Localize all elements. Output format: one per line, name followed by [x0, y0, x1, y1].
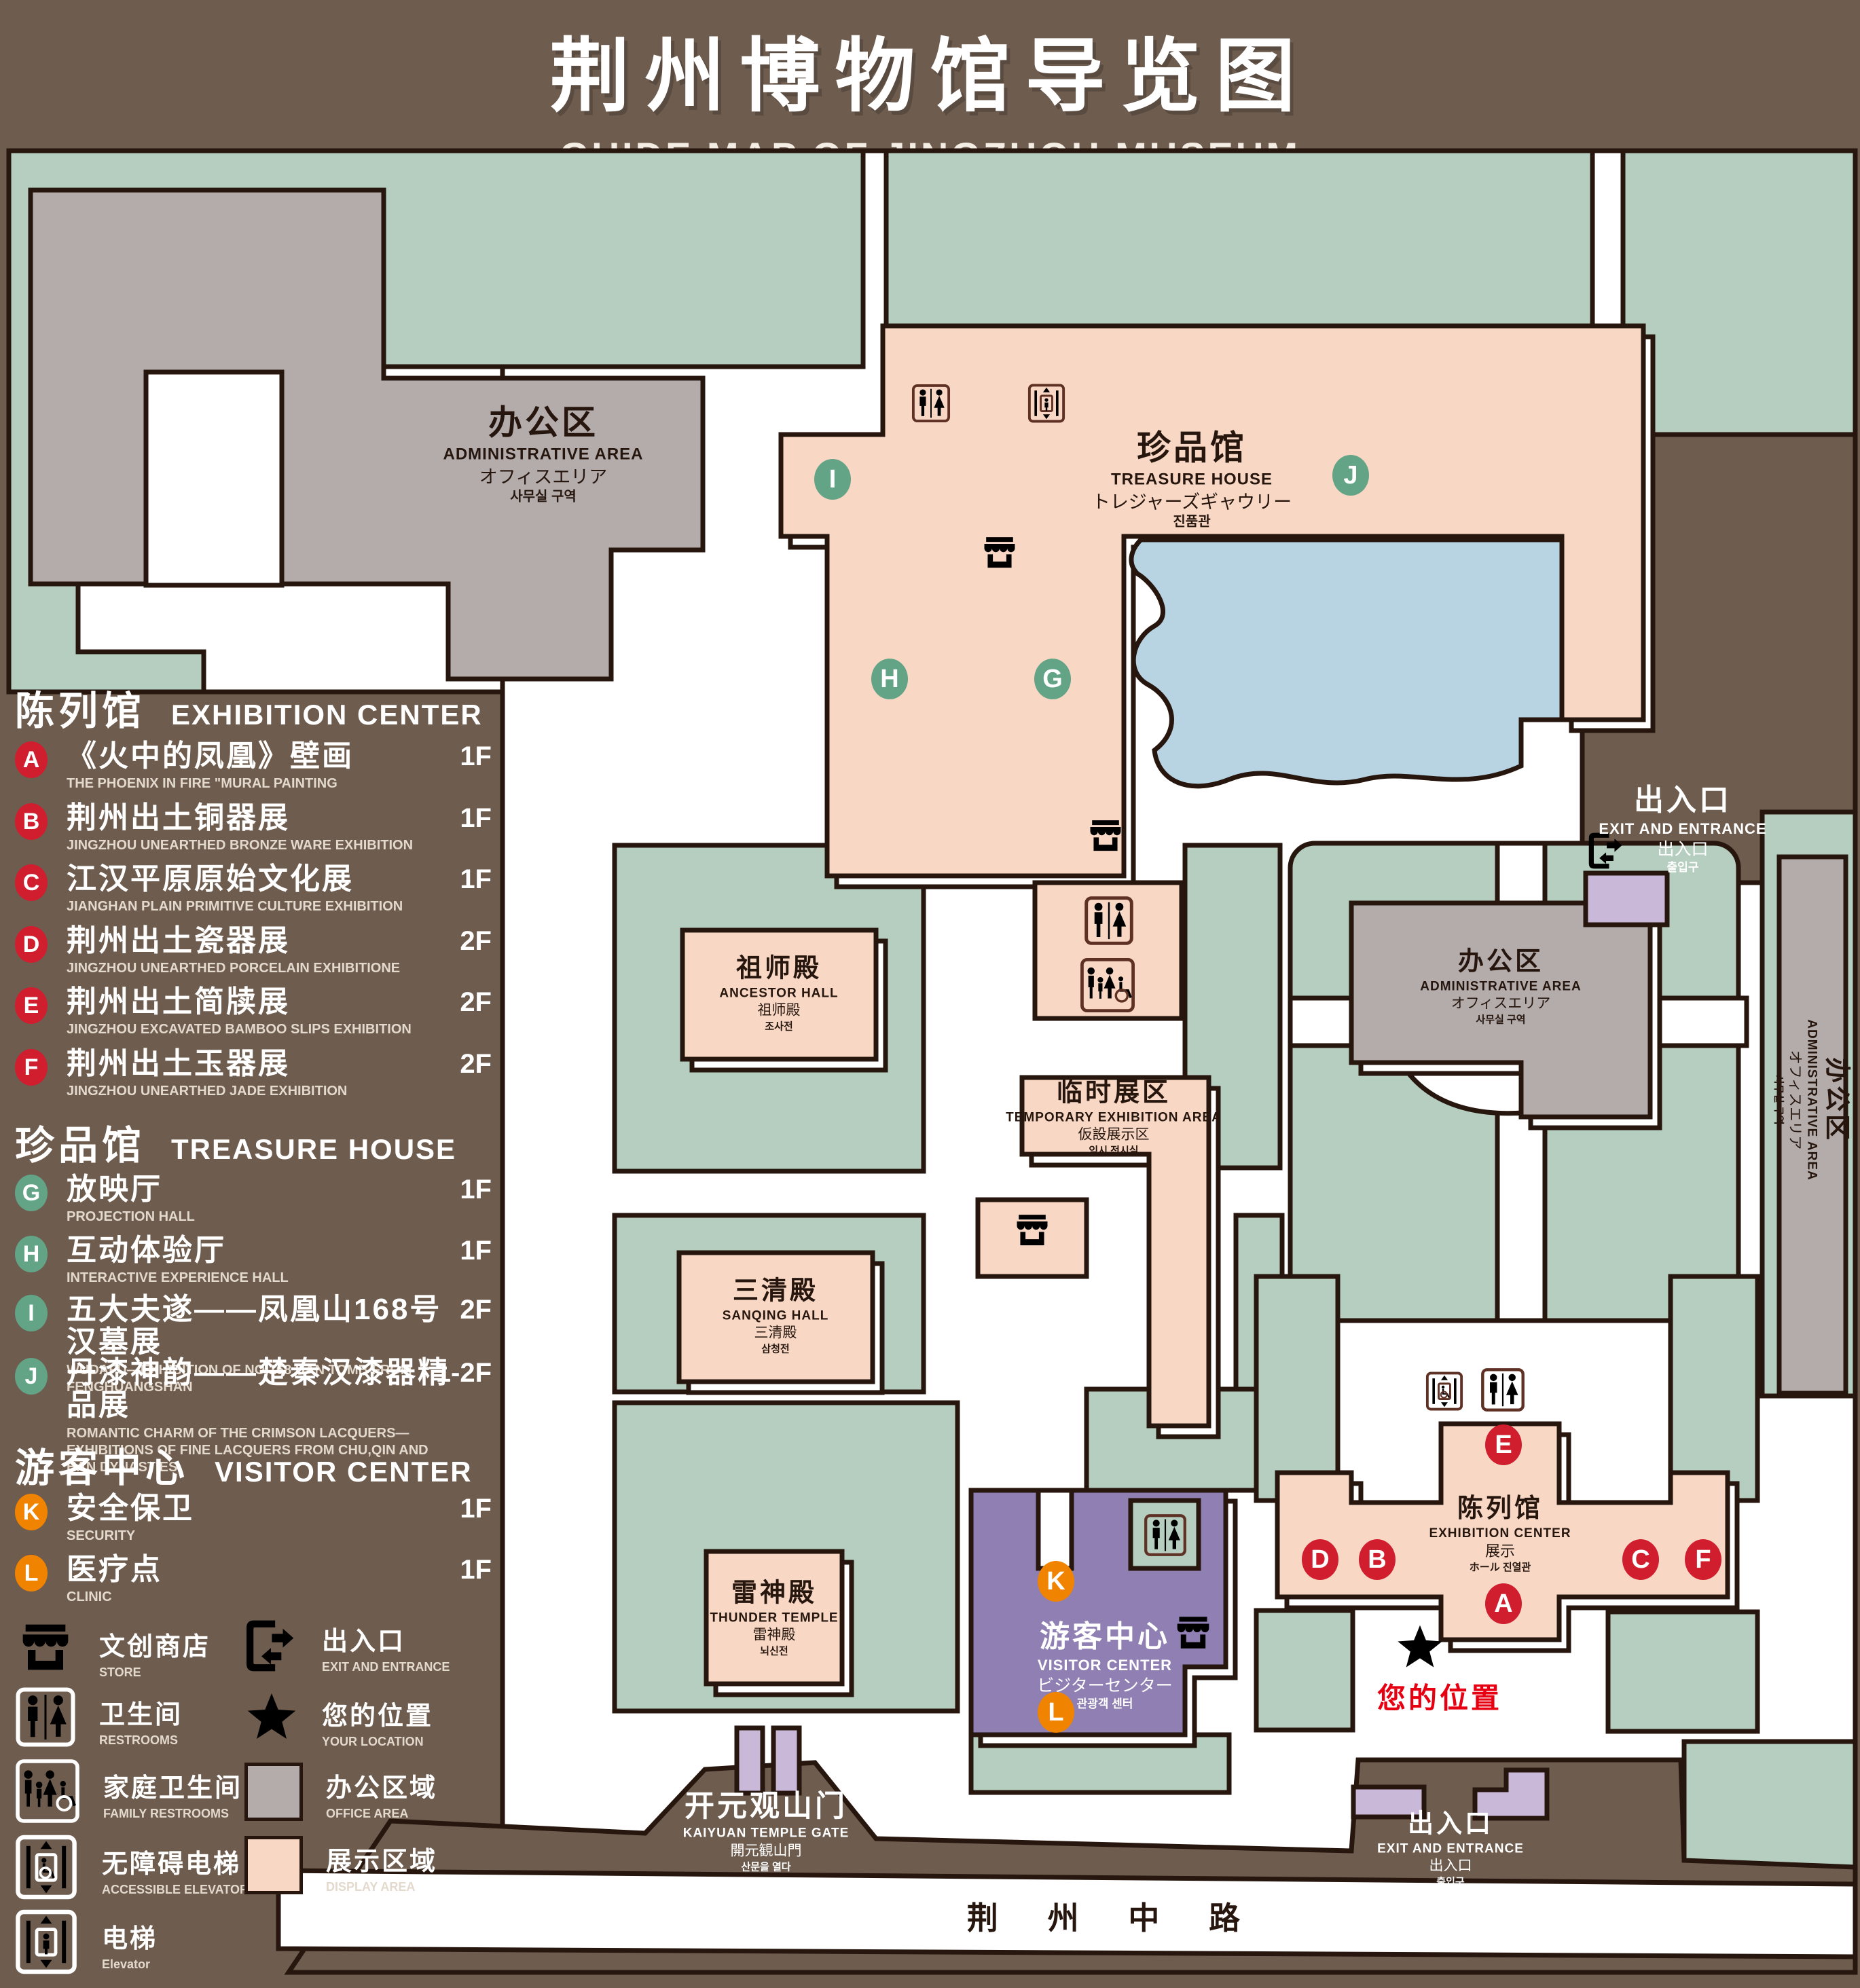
gate-pillar-west [737, 1728, 763, 1793]
legend-item-f: F 荆州出土玉器展 JINGZHOU UNEARTHED JADE EXHIBI… [15, 1048, 492, 1100]
map-badge-g: G [1034, 659, 1071, 699]
symbol-en: YOUR LOCATION [322, 1735, 433, 1749]
item-badge: F [15, 1049, 48, 1086]
map-badge-l: L [1038, 1692, 1074, 1733]
item-badge: I [15, 1295, 48, 1331]
section-title-zh: 陈列馆 [15, 679, 145, 736]
label-kaiyuan-gate: 开元观山门KAIYUAN TEMPLE GATE 開元観山門산문을 열다 [683, 1788, 850, 1874]
legend-symbol-display-area: 展示区域 DISPLAY AREA [244, 1836, 437, 1894]
symbol-zh: 无障碍电梯 [102, 1843, 249, 1880]
item-title-zh: 荆州出土简牍展 [67, 986, 458, 1018]
map-badge-k: K [1038, 1561, 1074, 1602]
item-floor: 1F [460, 1175, 492, 1205]
symbol-en: DISPLAY AREA [326, 1880, 437, 1894]
section-title-en: TREASURE HOUSE [171, 1133, 456, 1166]
item-title-en: JINGZHOU EXCAVATED BAMBOO SLIPS EXHIBITI… [67, 1021, 458, 1038]
item-title-zh: 荆州出土瓷器展 [67, 925, 458, 957]
pond [1131, 540, 1562, 786]
legend-item-a: A 《火中的凤凰》壁画 THE PHOENIX IN FIRE "MURAL P… [15, 740, 492, 792]
green-northeast-corner [1623, 151, 1855, 435]
label-exit-northeast: 出入口EXIT AND ENTRANCE 出入口출입구 [1599, 781, 1766, 875]
guide-map-poster: 荆州博物馆导览图 GUIDE MAP OF JINGZHOU MUSEUM [0, 0, 1860, 1988]
legend-symbol-store: 文创商店 STORE [15, 1621, 211, 1680]
section-title-zh: 珍品馆 [15, 1113, 145, 1171]
item-badge: B [15, 803, 48, 840]
item-badge: L [15, 1555, 48, 1591]
label-exit-south: 出入口EXIT AND ENTRANCE 出入口출입구 [1377, 1808, 1524, 1889]
map-badge-i: I [814, 459, 851, 500]
green-exhibition-ne [1671, 1276, 1757, 1501]
restrooms-icon [1480, 1359, 1525, 1420]
section-title-zh: 游客中心 [15, 1436, 189, 1493]
legend-symbol-accessible-elevator: 无障碍电梯 ACCESSIBLE ELEVATOR [14, 1832, 249, 1902]
item-title-zh: 互动体验厅 [67, 1234, 458, 1267]
green-north-band [886, 151, 1592, 326]
item-floor: 1F [460, 741, 492, 772]
item-badge: D [15, 926, 48, 963]
label-admin-side: 办公区ADMINISTRATIVE AREA オフィスエリア사무실 구역 [1772, 1019, 1853, 1181]
symbol-en: OFFICE AREA [326, 1807, 437, 1821]
elevator-icon [14, 1907, 79, 1977]
item-title-en: SECURITY [67, 1528, 458, 1545]
item-title-en: THE PHOENIX IN FIRE "MURAL PAINTING [67, 775, 458, 792]
item-title-zh: 荆州出土玉器展 [67, 1048, 458, 1080]
symbol-en: EXIT AND ENTRANCE [322, 1660, 450, 1674]
item-title-en: CLINIC [67, 1589, 458, 1606]
elevator-icon [1027, 372, 1066, 435]
map-badge-a: A [1485, 1583, 1522, 1624]
restrooms-icon [1144, 1509, 1187, 1562]
map-badge-b: B [1359, 1539, 1396, 1580]
symbol-en: FAMILY RESTROOMS [103, 1807, 242, 1821]
symbol-zh: 电梯 [102, 1917, 158, 1955]
family-restrooms-icon [15, 1759, 80, 1824]
symbol-zh: 出入口 [322, 1620, 450, 1657]
item-title-zh: 《火中的凤凰》壁画 [67, 740, 458, 773]
office-area-swatch [244, 1763, 303, 1821]
admin-courtyard-notch [146, 372, 282, 585]
legend-item-h: H 互动体验厅 INTERACTIVE EXPERIENCE HALL 1F [15, 1234, 492, 1287]
symbol-zh: 文创商店 [99, 1625, 211, 1663]
section-title-en: VISITOR CENTER [215, 1456, 473, 1488]
green-exhibition-sw [1256, 1610, 1353, 1730]
item-title-zh: 江汉平原原始文化展 [67, 863, 458, 896]
map-badge-c: C [1622, 1539, 1659, 1580]
legend-section-treasure: 珍品馆 TREASURE HOUSE [15, 1113, 456, 1171]
item-floor: 2F [460, 1295, 492, 1325]
symbol-en: Elevator [102, 1957, 158, 1972]
item-badge: J [15, 1358, 48, 1395]
item-badge: G [15, 1175, 48, 1211]
item-title-zh: 荆州出土铜器展 [67, 802, 458, 834]
gate-pillar-east [773, 1728, 799, 1793]
symbol-zh: 家庭卫生间 [103, 1767, 242, 1804]
exit-entrance-icon [239, 1616, 299, 1676]
item-title-en: JIANGHAN PLAIN PRIMITIVE CULTURE EXHIBIT… [67, 898, 458, 915]
legend-item-k: K 安全保卫 SECURITY 1F [15, 1492, 492, 1545]
legend-section-visitor: 游客中心 VISITOR CENTER [15, 1436, 473, 1493]
item-title-zh: 五大夫遂——凤凰山168号汉墓展 [67, 1293, 458, 1359]
item-title-en: PROJECTION HALL [67, 1209, 458, 1226]
item-title-en: JINGZHOU UNEARTHED JADE EXHIBITION [67, 1083, 458, 1100]
store-icon [979, 535, 1020, 572]
accessible-elevator-icon [14, 1832, 79, 1902]
item-title-en: JINGZHOU UNEARTHED PORCELAIN EXHIBITIONE [67, 960, 458, 977]
item-badge: A [15, 741, 48, 778]
legend-symbol-restrooms: 卫生间 RESTROOMS [15, 1684, 183, 1750]
item-floor: 1F [460, 864, 492, 895]
item-title-en: JINGZHOU UNEARTHED BRONZE WARE EXHIBITIO… [67, 837, 458, 854]
item-floor: 2F [460, 1049, 492, 1080]
visitor-center-notch [1038, 1490, 1072, 1568]
store-icon [1172, 1615, 1214, 1653]
label-admin-northwest: 办公区ADMINISTRATIVE AREA オフィスエリア사무실 구역 [443, 401, 644, 507]
legend-item-d: D 荆州出土瓷器展 JINGZHOU UNEARTHED PORCELAIN E… [15, 925, 492, 977]
map-badge-e: E [1485, 1424, 1522, 1465]
green-south-east [1684, 1742, 1855, 1867]
restrooms-icon [1084, 891, 1134, 951]
legend-item-e: E 荆州出土简牍展 JINGZHOU EXCAVATED BAMBOO SLIP… [15, 986, 492, 1038]
symbol-zh: 卫生间 [99, 1693, 183, 1731]
label-admin-east: 办公区ADMINISTRATIVE AREA オフィスエリア사무실 구역 [1420, 946, 1582, 1027]
legend-symbol-elevator: 电梯 Elevator [14, 1907, 158, 1977]
legend-item-b: B 荆州出土铜器展 JINGZHOU UNEARTHED BRONZE WARE… [15, 802, 492, 854]
map-badge-f: F [1685, 1539, 1721, 1580]
legend-symbol-office-area: 办公区域 OFFICE AREA [244, 1763, 437, 1821]
legend-section-exhibition: 陈列馆 EXHIBITION CENTER [15, 679, 483, 736]
item-floor: 1F [460, 1555, 492, 1585]
item-floor: 1F [460, 1236, 492, 1266]
label-temporary-exhibition: 临时展区TEMPORARY EXHIBITION AREA 仮設展示区임시 전시… [1006, 1077, 1222, 1158]
item-floor: 1F [460, 803, 492, 834]
item-badge: K [15, 1494, 48, 1530]
item-badge: C [15, 864, 48, 901]
family-restrooms-icon [1078, 957, 1137, 1013]
symbol-zh: 办公区域 [326, 1767, 437, 1804]
item-floor: 2F [460, 987, 492, 1018]
symbol-en: RESTROOMS [99, 1733, 183, 1748]
symbol-en: ACCESSIBLE ELEVATOR [102, 1883, 249, 1897]
item-floor: 1F [460, 1494, 492, 1524]
green-exhibition-nw [1256, 1276, 1338, 1501]
legend-item-l: L 医疗点 CLINIC 1F [15, 1553, 492, 1606]
map-badge-j: J [1332, 455, 1369, 496]
restrooms-icon [15, 1684, 76, 1750]
symbol-en: STORE [99, 1665, 211, 1680]
label-ancestor-hall: 祖师殿ANCESTOR HALL 祖师殿조사전 [719, 953, 838, 1033]
map-badge-h: H [871, 659, 908, 699]
store-icon [1012, 1213, 1053, 1249]
green-exhibition-se [1608, 1612, 1757, 1731]
item-title-zh: 医疗点 [67, 1553, 458, 1586]
section-title-en: EXHIBITION CENTER [171, 699, 483, 731]
legend-symbol-family-restrooms: 家庭卫生间 FAMILY RESTROOMS [15, 1759, 242, 1824]
symbol-zh: 您的位置 [322, 1695, 433, 1732]
item-floor: 2F [460, 926, 492, 957]
restrooms-icon [911, 372, 951, 435]
park-path-south [1497, 1107, 1545, 1321]
store-icon [15, 1621, 76, 1676]
legend-symbol-exit: 出入口 EXIT AND ENTRANCE [239, 1616, 450, 1676]
gatehouse-northeast [1586, 873, 1667, 925]
display-area-swatch [244, 1836, 303, 1894]
your-location-star-icon [1395, 1623, 1445, 1673]
label-your-location: 您的位置 [1377, 1676, 1502, 1717]
item-title-zh: 安全保卫 [67, 1492, 458, 1525]
legend-symbol-location: 您的位置 YOUR LOCATION [244, 1691, 433, 1749]
map-badge-d: D [1302, 1539, 1338, 1580]
store-icon [1085, 818, 1126, 855]
your-location-star-icon [244, 1691, 299, 1745]
item-title-zh: 丹漆神韵——楚秦汉漆器精品展 [67, 1357, 458, 1422]
label-treasure-house: 珍品馆TREASURE HOUSE トレジャーズギャウリー진품관 [1092, 426, 1292, 532]
item-badge: E [15, 987, 48, 1024]
symbol-zh: 展示区域 [326, 1840, 437, 1877]
label-thunder-temple: 雷神殿THUNDER TEMPLE 雷神殿뇌신전 [710, 1577, 838, 1658]
item-floor: 1-2F [436, 1358, 492, 1388]
legend-item-g: G 放映厅 PROJECTION HALL 1F [15, 1173, 492, 1226]
item-badge: H [15, 1236, 48, 1272]
label-exhibition-center: 陈列馆EXHIBITION CENTER 展示 ホール 진열관 [1429, 1492, 1571, 1574]
item-title-en: INTERACTIVE EXPERIENCE HALL [67, 1270, 458, 1287]
label-sanqing-hall: 三清殿SANQING HALL 三清殿삼청전 [723, 1275, 829, 1356]
item-title-zh: 放映厅 [67, 1173, 458, 1206]
label-road: 荆 州 中 路 [967, 1894, 1260, 1938]
accessible-elevator-icon [1425, 1362, 1464, 1420]
legend-item-c: C 江汉平原原始文化展 JIANGHAN PLAIN PRIMITIVE CUL… [15, 863, 492, 915]
